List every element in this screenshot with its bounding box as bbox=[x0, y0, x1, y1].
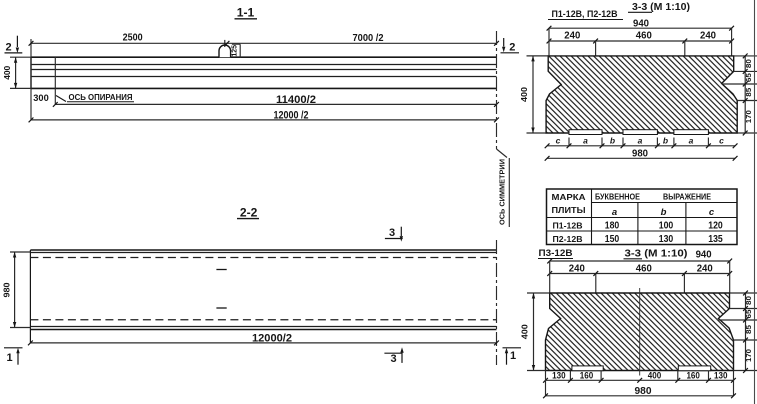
svg-text:3-3 (М 1:10): 3-3 (М 1:10) bbox=[625, 249, 688, 260]
svg-text:150: 150 bbox=[605, 234, 620, 245]
svg-text:125: 125 bbox=[232, 45, 239, 57]
svg-text:85: 85 bbox=[744, 325, 753, 334]
svg-text:2-2: 2-2 bbox=[240, 208, 258, 220]
svg-text:2: 2 bbox=[509, 41, 515, 53]
svg-text:130: 130 bbox=[714, 371, 728, 381]
svg-text:ПЛИТЫ: ПЛИТЫ bbox=[552, 205, 586, 215]
svg-text:3: 3 bbox=[390, 353, 396, 365]
svg-text:ОСЬ СИММЕТРИИ: ОСЬ СИММЕТРИИ bbox=[498, 159, 507, 225]
svg-text:300: 300 bbox=[33, 93, 49, 103]
svg-text:1: 1 bbox=[510, 350, 516, 362]
svg-text:12000/2: 12000/2 bbox=[252, 332, 292, 344]
svg-text:65: 65 bbox=[744, 73, 753, 82]
svg-text:ОСЬ ОПИРАНИЯ: ОСЬ ОПИРАНИЯ bbox=[69, 93, 133, 102]
svg-text:160: 160 bbox=[580, 371, 594, 381]
svg-text:П1-12В: П1-12В bbox=[553, 220, 583, 230]
svg-text:460: 460 bbox=[636, 31, 652, 42]
svg-text:65: 65 bbox=[744, 310, 753, 319]
svg-text:a: a bbox=[638, 136, 643, 146]
svg-text:2500: 2500 bbox=[123, 32, 143, 43]
svg-text:ВЫРАЖЕНИЕ: ВЫРАЖЕНИЕ bbox=[663, 192, 711, 202]
svg-text:400: 400 bbox=[648, 371, 662, 381]
svg-text:МАРКА: МАРКА bbox=[552, 192, 586, 202]
svg-text:80: 80 bbox=[744, 296, 753, 305]
svg-text:3-3 (М 1:10): 3-3 (М 1:10) bbox=[632, 2, 690, 13]
svg-text:170: 170 bbox=[744, 349, 753, 362]
svg-text:940: 940 bbox=[696, 249, 712, 260]
svg-text:12000 /2: 12000 /2 bbox=[274, 109, 309, 121]
svg-text:П3-12В: П3-12В bbox=[539, 248, 574, 258]
svg-text:БУКВЕННОЕ: БУКВЕННОЕ bbox=[595, 192, 640, 202]
svg-text:160: 160 bbox=[686, 371, 700, 381]
svg-text:П2-12В: П2-12В bbox=[553, 234, 583, 244]
svg-text:240: 240 bbox=[700, 31, 716, 42]
svg-text:130: 130 bbox=[552, 371, 566, 381]
svg-text:980: 980 bbox=[1, 282, 11, 297]
svg-text:170: 170 bbox=[744, 110, 753, 123]
svg-text:135: 135 bbox=[708, 234, 723, 245]
svg-text:80: 80 bbox=[744, 59, 753, 68]
svg-text:a: a bbox=[689, 136, 694, 146]
svg-text:a: a bbox=[583, 136, 588, 146]
svg-text:130: 130 bbox=[659, 234, 674, 245]
svg-text:c: c bbox=[556, 136, 561, 146]
svg-text:c: c bbox=[709, 207, 715, 218]
svg-text:3: 3 bbox=[389, 227, 395, 239]
svg-text:85: 85 bbox=[744, 88, 753, 97]
svg-text:b: b bbox=[663, 136, 668, 146]
svg-text:11400/2: 11400/2 bbox=[276, 94, 316, 106]
svg-text:a: a bbox=[612, 207, 617, 218]
svg-text:240: 240 bbox=[697, 263, 713, 274]
svg-text:460: 460 bbox=[636, 263, 652, 274]
svg-text:1: 1 bbox=[6, 352, 12, 364]
svg-text:2: 2 bbox=[5, 42, 11, 54]
svg-text:240: 240 bbox=[569, 263, 585, 274]
svg-text:980: 980 bbox=[635, 386, 652, 397]
svg-text:240: 240 bbox=[564, 31, 580, 42]
svg-text:b: b bbox=[610, 136, 615, 146]
svg-text:b: b bbox=[661, 207, 667, 218]
svg-text:П1-12В, П2-12В: П1-12В, П2-12В bbox=[552, 9, 618, 19]
svg-text:400: 400 bbox=[3, 65, 12, 80]
svg-text:980: 980 bbox=[632, 149, 648, 160]
svg-text:400: 400 bbox=[519, 87, 529, 102]
svg-text:120: 120 bbox=[708, 220, 723, 231]
svg-text:400: 400 bbox=[519, 324, 529, 339]
svg-text:c: c bbox=[719, 136, 724, 146]
svg-text:7000 /2: 7000 /2 bbox=[353, 33, 384, 44]
svg-text:180: 180 bbox=[605, 220, 620, 231]
svg-text:100: 100 bbox=[659, 220, 674, 231]
svg-text:1-1: 1-1 bbox=[237, 8, 255, 20]
